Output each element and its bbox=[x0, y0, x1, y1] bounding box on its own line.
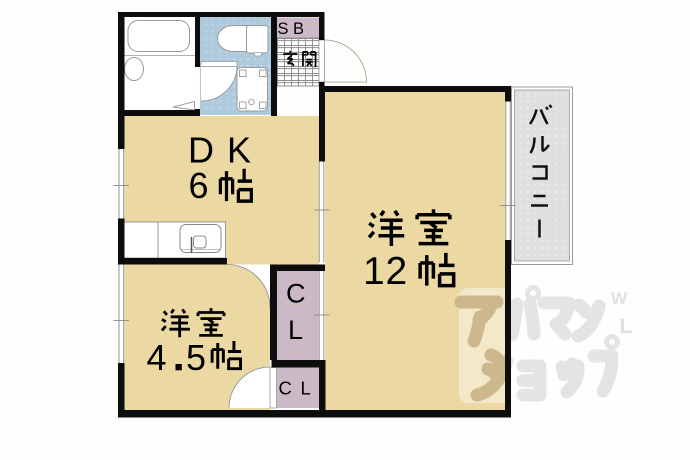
svg-text:2: 2 bbox=[386, 250, 408, 293]
svg-text:W: W bbox=[611, 289, 628, 308]
svg-text:L: L bbox=[301, 378, 311, 399]
svg-text:6: 6 bbox=[189, 165, 209, 206]
svg-text:4: 4 bbox=[147, 337, 167, 378]
svg-text:L: L bbox=[620, 315, 633, 338]
svg-text:S: S bbox=[278, 20, 289, 38]
svg-text:C: C bbox=[279, 378, 292, 399]
svg-text:5: 5 bbox=[186, 337, 206, 378]
svg-text:K: K bbox=[227, 130, 251, 171]
svg-text:1: 1 bbox=[363, 250, 385, 293]
svg-text:B: B bbox=[293, 20, 304, 38]
svg-text:L: L bbox=[288, 315, 303, 345]
svg-text:C: C bbox=[286, 279, 306, 309]
